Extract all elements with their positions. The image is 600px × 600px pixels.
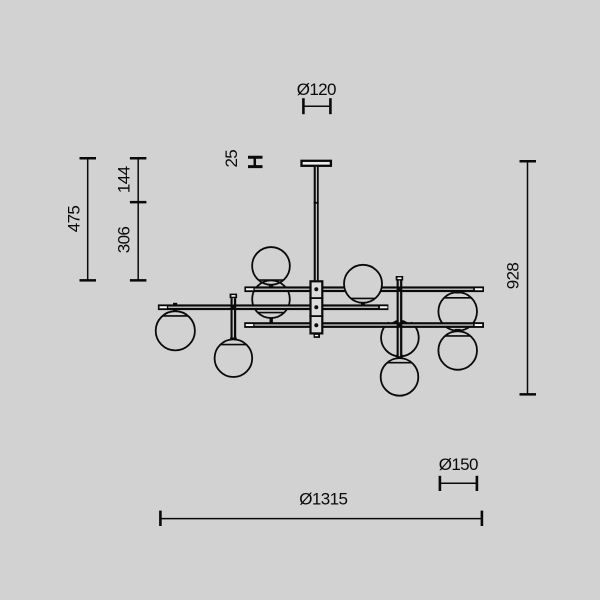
svg-text:928: 928 <box>503 263 522 290</box>
svg-text:144: 144 <box>115 166 134 193</box>
svg-text:25: 25 <box>222 150 241 168</box>
svg-text:306: 306 <box>115 227 134 254</box>
svg-text:H: H <box>244 154 267 169</box>
svg-text:Ø150: Ø150 <box>439 455 478 474</box>
svg-text:Ø1315: Ø1315 <box>299 489 347 508</box>
svg-text:Ø120: Ø120 <box>297 80 336 99</box>
svg-text:475: 475 <box>65 206 84 233</box>
